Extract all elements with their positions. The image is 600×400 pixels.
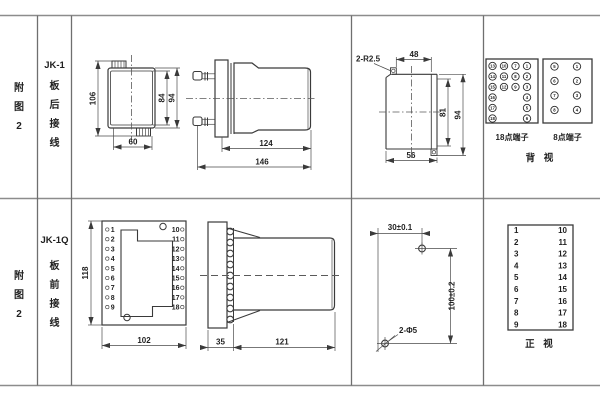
svg-text:13: 13 xyxy=(558,261,567,270)
svg-text:1: 1 xyxy=(576,64,579,69)
svg-text:8: 8 xyxy=(514,309,519,318)
jk1q-side-view: 35 121 xyxy=(200,222,340,351)
svg-text:6: 6 xyxy=(526,116,529,121)
svg-text:10: 10 xyxy=(172,227,180,234)
dim-94-cutout: 94 xyxy=(454,110,463,119)
jk1q-front-view: 1 2 3 4 5 6 7 8 9 10 11 12 13 14 15 16 1… xyxy=(81,221,186,349)
svg-text:13: 13 xyxy=(490,64,495,69)
svg-text:8: 8 xyxy=(553,108,556,113)
svg-text:11: 11 xyxy=(502,74,507,79)
svg-text:5: 5 xyxy=(514,273,519,282)
svg-text:8: 8 xyxy=(514,74,517,79)
front-terminal-table: 1 2 3 4 5 6 7 8 9 10 11 12 13 14 15 16 1… xyxy=(508,225,573,350)
svg-text:接: 接 xyxy=(50,117,60,130)
svg-text:6: 6 xyxy=(111,276,115,283)
figure-char: 图 xyxy=(14,101,24,113)
svg-text:18: 18 xyxy=(558,320,567,329)
drawing-canvas: 附 图 2 JK-1 板 后 接 线 106 84 94 60 xyxy=(0,0,600,400)
label-8-point: 8点端子 xyxy=(553,132,581,142)
figure-label-top: 附 图 2 xyxy=(14,81,24,132)
dim-35: 35 xyxy=(216,338,225,347)
rear-view-label: 背 视 xyxy=(526,152,557,164)
svg-text:18: 18 xyxy=(490,116,495,121)
svg-text:7: 7 xyxy=(514,64,517,69)
svg-text:7: 7 xyxy=(553,93,556,98)
figure-char: 2 xyxy=(16,121,22,132)
svg-text:6: 6 xyxy=(553,79,556,84)
svg-text:1: 1 xyxy=(526,64,529,69)
dim-60: 60 xyxy=(129,138,138,147)
svg-text:9: 9 xyxy=(514,320,519,329)
terminal-block-8 xyxy=(543,59,592,123)
svg-text:2: 2 xyxy=(576,79,579,84)
svg-text:7: 7 xyxy=(111,285,115,292)
table-left-column: 1 2 3 4 5 6 7 8 9 xyxy=(514,226,519,329)
technical-drawing-page: 附 图 2 JK-1 板 后 接 线 106 84 94 60 xyxy=(0,0,600,400)
svg-text:12: 12 xyxy=(558,250,567,259)
svg-text:6: 6 xyxy=(514,285,519,294)
figure-label-bottom: 附 图 2 xyxy=(14,269,24,320)
terminal-numbers-8: 5 1 6 2 7 3 8 4 xyxy=(553,64,579,113)
svg-text:12: 12 xyxy=(502,85,507,90)
svg-text:3: 3 xyxy=(576,93,579,98)
stepped-cutout-outline xyxy=(121,230,173,317)
svg-text:16: 16 xyxy=(558,297,567,306)
svg-text:4: 4 xyxy=(514,261,519,270)
svg-text:14: 14 xyxy=(558,273,567,282)
svg-text:4: 4 xyxy=(111,256,115,263)
model-label-top: JK-1 板 后 接 线 xyxy=(44,60,65,149)
dim-106: 106 xyxy=(89,91,98,105)
svg-text:15: 15 xyxy=(172,276,180,283)
model-name: JK-1 xyxy=(44,60,65,71)
svg-text:9: 9 xyxy=(111,305,115,312)
left-terminal-column: 1 2 3 4 5 6 7 8 9 xyxy=(106,227,115,312)
svg-text:17: 17 xyxy=(490,106,495,111)
svg-text:7: 7 xyxy=(514,297,519,306)
svg-text:3: 3 xyxy=(514,250,519,259)
svg-text:4: 4 xyxy=(526,95,529,100)
dim-56: 56 xyxy=(407,151,416,160)
svg-text:附: 附 xyxy=(14,269,24,282)
svg-text:接: 接 xyxy=(50,297,60,310)
terminal-circles-18 xyxy=(489,62,531,122)
svg-text:5: 5 xyxy=(111,266,115,273)
model-name: JK-1Q xyxy=(41,235,69,246)
rear-terminal-view: 13 10 7 1 14 11 8 2 15 12 9 3 16 4 17 5 … xyxy=(486,59,592,164)
dim-121: 121 xyxy=(275,338,289,347)
right-terminal-column: 10 11 12 13 14 15 16 17 18 xyxy=(172,227,184,312)
svg-text:8: 8 xyxy=(111,295,115,302)
svg-text:板: 板 xyxy=(50,79,61,92)
dim-81: 81 xyxy=(439,108,448,117)
svg-text:前: 前 xyxy=(50,278,60,291)
svg-text:12: 12 xyxy=(172,246,180,253)
svg-text:1: 1 xyxy=(514,226,519,235)
jk1-front-view: 106 84 94 60 xyxy=(89,55,181,150)
svg-text:3: 3 xyxy=(111,246,115,253)
svg-text:15: 15 xyxy=(558,285,567,294)
dim-84: 84 xyxy=(158,93,167,102)
drill-plan-view: 30±0.1 100±0.2 2-Φ5 xyxy=(370,223,457,352)
svg-text:5: 5 xyxy=(526,106,529,111)
svg-text:4: 4 xyxy=(576,108,579,113)
svg-text:2: 2 xyxy=(16,309,22,320)
svg-text:板: 板 xyxy=(50,259,61,272)
terminal-circles-8 xyxy=(551,63,581,114)
svg-text:17: 17 xyxy=(172,295,180,302)
dim-124: 124 xyxy=(259,139,273,148)
svg-text:2: 2 xyxy=(526,74,529,79)
svg-text:11: 11 xyxy=(559,238,568,247)
svg-text:17: 17 xyxy=(558,309,567,318)
svg-text:后: 后 xyxy=(50,98,60,111)
figure-char: 附 xyxy=(14,81,24,94)
terminal-numbers-18: 13 10 7 1 14 11 8 2 15 12 9 3 16 4 17 5 … xyxy=(490,64,529,122)
mounting-hole xyxy=(124,314,130,320)
jk1-side-view: 124 146 xyxy=(186,60,315,170)
front-view-label: 正 视 xyxy=(525,338,556,350)
dim-118: 118 xyxy=(81,266,90,279)
svg-text:2: 2 xyxy=(111,237,115,244)
model-label-bottom: JK-1Q 板 前 接 线 xyxy=(41,235,69,329)
dim-102: 102 xyxy=(137,336,151,345)
svg-text:2: 2 xyxy=(514,238,519,247)
dim-94: 94 xyxy=(168,93,177,102)
svg-text:13: 13 xyxy=(172,256,180,263)
svg-text:18: 18 xyxy=(172,305,180,312)
svg-text:16: 16 xyxy=(490,95,495,100)
svg-text:线: 线 xyxy=(50,316,60,329)
dim-48: 48 xyxy=(410,50,419,59)
table-right-column: 10 11 12 13 14 15 16 17 18 xyxy=(558,226,567,329)
svg-text:10: 10 xyxy=(558,226,567,235)
svg-text:16: 16 xyxy=(172,285,180,292)
svg-text:14: 14 xyxy=(172,266,180,273)
svg-text:14: 14 xyxy=(490,74,495,79)
svg-text:3: 3 xyxy=(526,85,529,90)
label-18-point: 18点端子 xyxy=(496,132,529,142)
svg-text:5: 5 xyxy=(553,64,556,69)
corner-radius-note: 2-R2.5 xyxy=(356,55,381,64)
panel-cutout-view: 48 2-R2.5 81 94 56 xyxy=(356,50,466,163)
svg-text:1: 1 xyxy=(111,227,115,234)
dim-30: 30±0.1 xyxy=(388,223,413,232)
svg-text:11: 11 xyxy=(172,237,180,244)
svg-text:15: 15 xyxy=(490,85,495,90)
svg-text:10: 10 xyxy=(502,64,507,69)
svg-text:9: 9 xyxy=(514,85,517,90)
mounting-hole xyxy=(160,223,166,229)
hole-size-note: 2-Φ5 xyxy=(399,326,418,335)
dim-100: 100±0.2 xyxy=(448,281,457,310)
svg-text:图: 图 xyxy=(14,289,24,301)
svg-text:线: 线 xyxy=(50,136,60,149)
dim-146: 146 xyxy=(255,158,269,167)
